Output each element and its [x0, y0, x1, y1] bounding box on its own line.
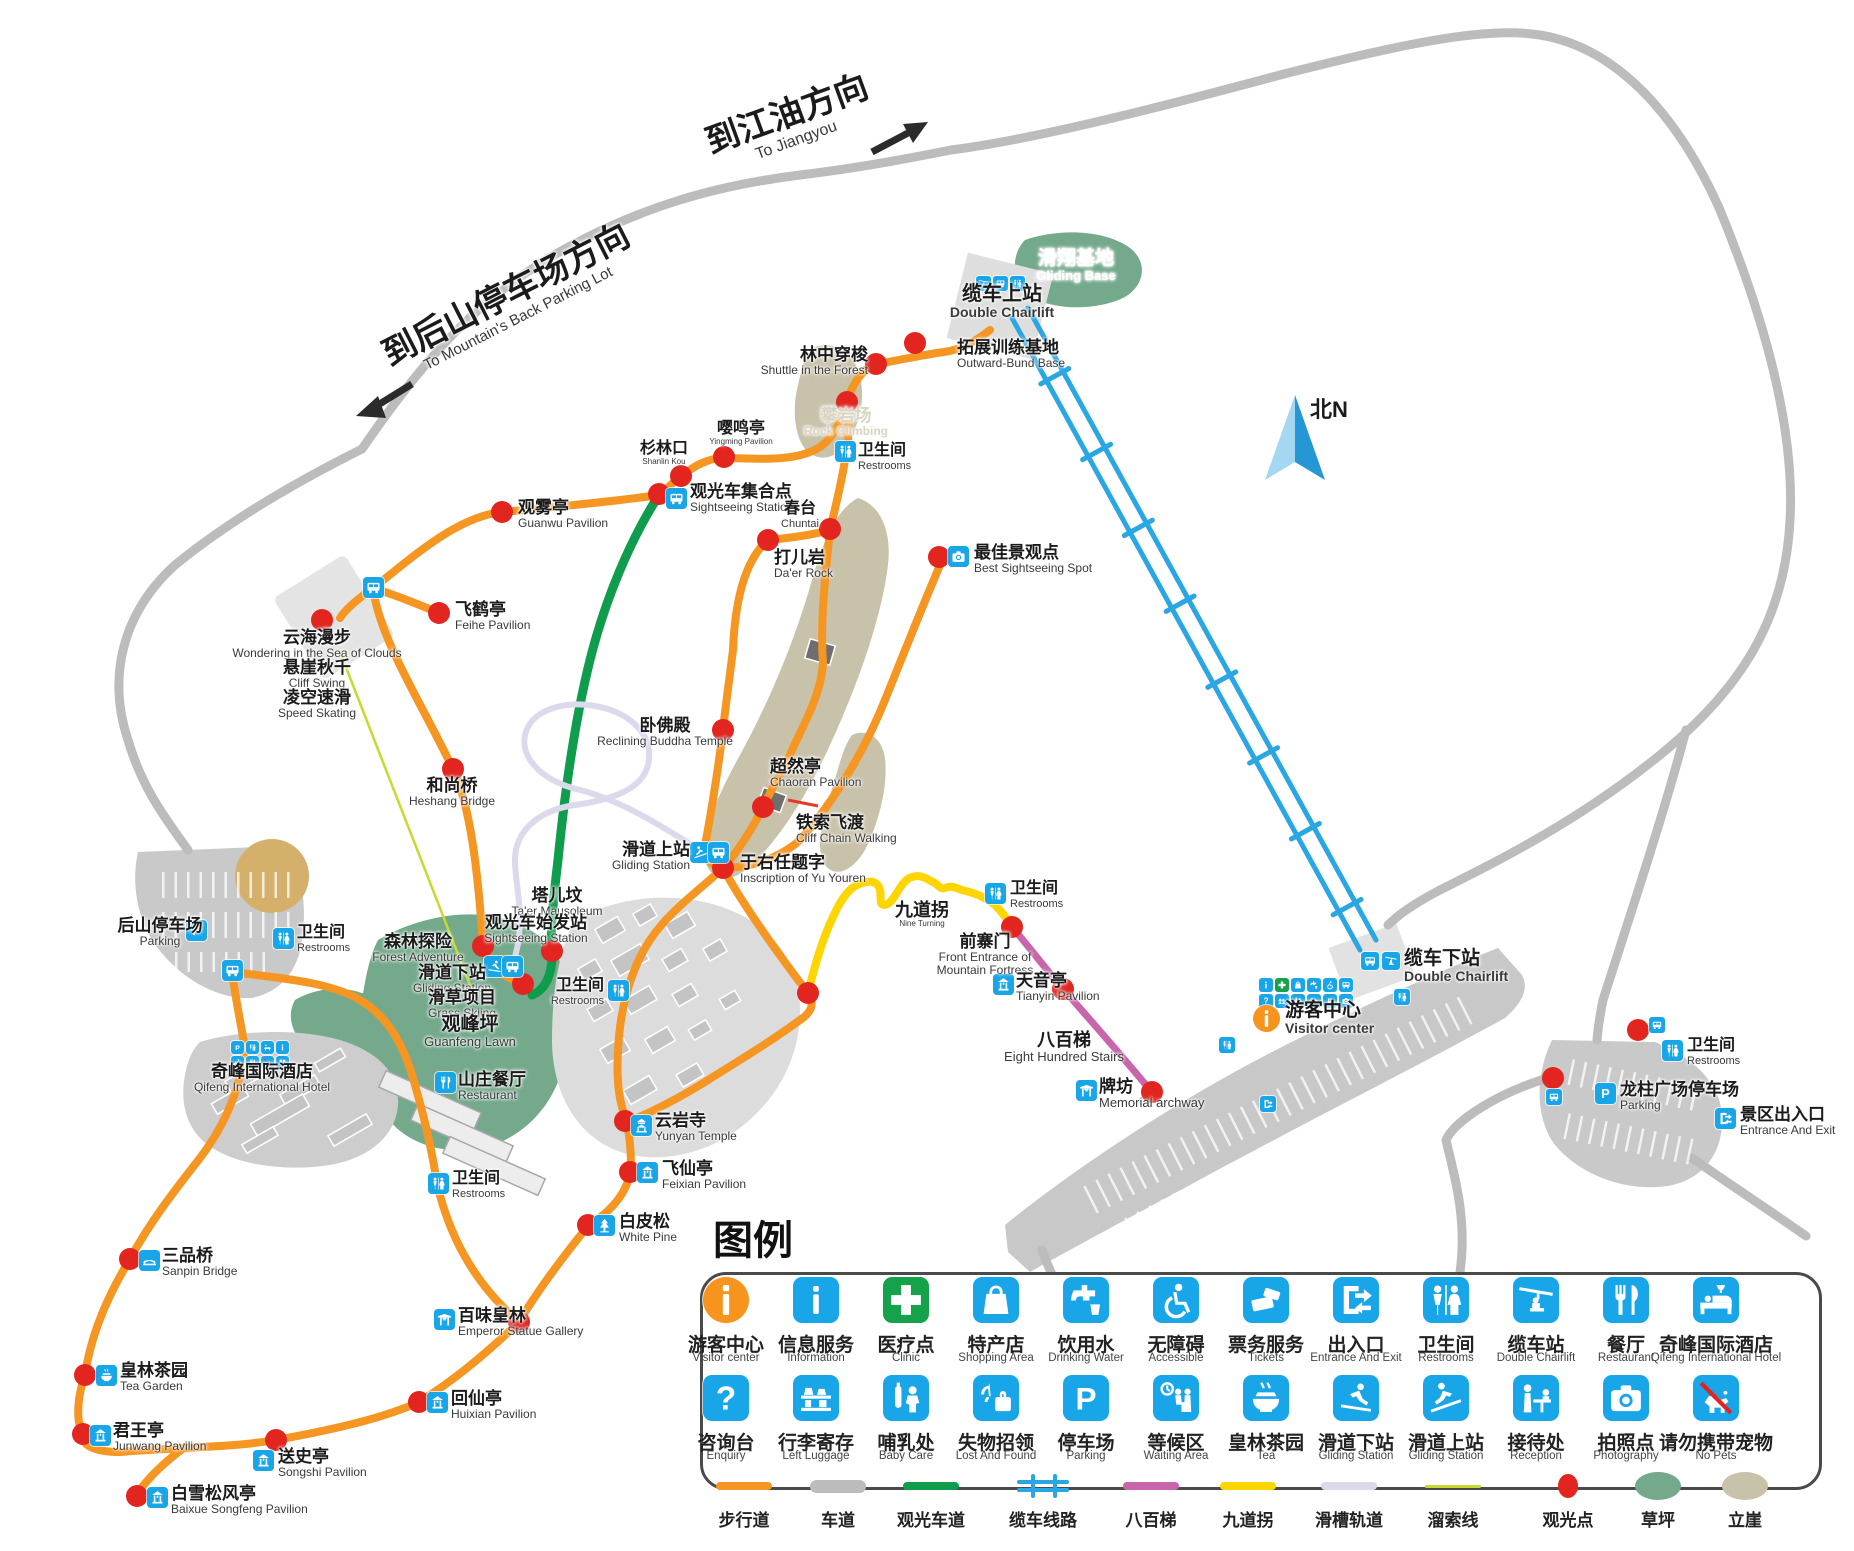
legend-line-label: 九道拐: [1223, 1506, 1274, 1531]
legend-chairlift-icon: [1513, 1277, 1559, 1323]
to-jiangyou-arrow: [872, 122, 928, 152]
legend-item-en: Enquiry: [707, 1450, 746, 1462]
legend-title: 图例: [713, 1208, 793, 1266]
poi-label-en: Restrooms: [452, 1188, 505, 1200]
wc-icon[interactable]: [985, 883, 1006, 904]
legend-tea-icon: [1243, 1375, 1289, 1421]
poi-label-en: Nine Turning: [895, 920, 949, 929]
bus-icon[interactable]: [666, 488, 687, 509]
pavilion-icon[interactable]: [90, 1425, 111, 1446]
poi-label: 飞仙亭Feixian Pavilion: [662, 1159, 746, 1191]
poi-label-en: Sanpin Bridge: [162, 1265, 237, 1278]
poi-label-zh: 滑翔基地: [1036, 248, 1115, 269]
poi-label-zh: 游客中心: [1285, 1000, 1374, 1021]
wheelchair-icon[interactable]: [1323, 978, 1337, 992]
poi-label-en: Guanwu Pavilion: [518, 517, 608, 530]
legend-luggage-icon: [793, 1375, 839, 1421]
forkknife-icon[interactable]: [435, 1072, 456, 1093]
legend-item-en: Waiting Area: [1144, 1450, 1209, 1462]
poi-label-en: Huixian Pavilion: [451, 1408, 536, 1421]
poi-label-en: Sightseeing Station: [484, 932, 587, 945]
legend-item-en: Parking: [1067, 1450, 1106, 1462]
svg-text:P: P: [1075, 1380, 1096, 1416]
poi-label: 悬崖秋千Cliff Swing: [283, 658, 351, 690]
legend-line-label: 立崖: [1728, 1506, 1762, 1531]
sightseeing-spot-dot[interactable]: [819, 518, 841, 540]
archway-icon[interactable]: [434, 1309, 455, 1330]
poi-label-zh: 观雾亭: [518, 498, 608, 517]
poi-label-zh: 攀岩场: [804, 406, 888, 425]
poi-label-en: Qifeng International Hotel: [194, 1081, 330, 1094]
poi-label-en: Cliff Chain Walking: [796, 832, 897, 845]
roads: [119, 33, 1806, 1414]
poi-label-zh: 奇峰国际酒店: [194, 1062, 330, 1081]
poi-label: 龙柱广场停车场Parking: [1620, 1080, 1739, 1112]
area-blobs: [135, 232, 1722, 1272]
legend-lostfound-icon: [973, 1375, 1019, 1421]
poi-label-zh: 林中穿梭: [761, 345, 868, 364]
poi-label-zh: 卫生间: [551, 977, 604, 995]
poi-label-zh: 皇林茶园: [120, 1361, 188, 1380]
poi-label-en: Inscription of Yu Youren: [740, 872, 866, 885]
poi-label-zh: 缆车上站: [950, 283, 1054, 305]
poi-label: 景区出入口Entrance And Exit: [1740, 1105, 1835, 1137]
bus-icon[interactable]: [502, 956, 523, 977]
bus-icon[interactable]: [1339, 978, 1353, 992]
poi-label-en: Da'er Rock: [774, 567, 833, 580]
poi-label: 铁索飞渡Cliff Chain Walking: [796, 813, 897, 845]
pavilion-icon[interactable]: [147, 1487, 168, 1508]
legend-question-icon: ?: [703, 1375, 749, 1421]
poi-label-zh: 白雪松风亭: [171, 1484, 308, 1503]
poi-label-en: Feixian Pavilion: [662, 1178, 746, 1191]
poi-label-zh: 铁索飞渡: [796, 813, 897, 832]
poi-label-zh: 杉林口: [640, 440, 688, 458]
wc-icon[interactable]: [608, 980, 629, 1001]
sand-circle: [235, 839, 309, 913]
poi-label-en: Parking: [1620, 1099, 1739, 1112]
poi-label: 卧佛殿Reclining Buddha Temple: [597, 716, 733, 748]
poi-label: 打儿岩Da'er Rock: [774, 548, 833, 580]
poi-label-zh: 飞鹤亭: [455, 600, 530, 619]
poi-label: 白皮松White Pine: [619, 1212, 677, 1244]
legend-line-line: [1123, 1482, 1179, 1490]
poi-label: 游客中心Visitor center: [1285, 1000, 1374, 1037]
poi-label: 于右任题字Inscription of Yu Youren: [740, 853, 866, 885]
poi-label: 缆车下站Double Chairlift: [1404, 948, 1508, 985]
i-icon[interactable]: [1259, 978, 1273, 992]
legend-item-en: Qifeng International Hotel: [1651, 1352, 1781, 1364]
poi-label-zh: 超然亭: [770, 757, 861, 776]
exit-icon[interactable]: [1260, 1096, 1276, 1112]
poi-label-zh: 卧佛殿: [597, 716, 733, 735]
legend-item-en: Double Chairlift: [1497, 1352, 1576, 1364]
poi-label-zh: 卫生间: [297, 924, 350, 942]
poi-label: 卫生间Restrooms: [1687, 1037, 1740, 1067]
poi-label: 超然亭Chaoran Pavilion: [770, 757, 861, 789]
sightseeing-spot-dot[interactable]: [74, 1364, 96, 1386]
poi-label: 云岩寺Yunyan Temple: [655, 1111, 737, 1143]
poi-label-zh: 观峰坪: [424, 1014, 516, 1035]
to-back-parking-arrow: [356, 384, 412, 418]
tea-icon[interactable]: [96, 1365, 117, 1386]
poi-label: 滑翔基地Gliding Base: [1036, 248, 1115, 284]
sightseeing-spot-dot[interactable]: [865, 353, 887, 375]
poi-label-zh: 前寨门: [937, 932, 1034, 951]
poi-label: 君王亭Junwang Pavilion: [113, 1421, 206, 1453]
wc-icon[interactable]: [246, 1041, 259, 1054]
legend-item-en: Reception: [1510, 1450, 1562, 1462]
poi-label: 拓展训练基地Outward-Bund Base: [957, 338, 1065, 370]
legend-item-en: Gliding Station: [1319, 1450, 1394, 1462]
legend-item-en: Shopping Area: [958, 1352, 1033, 1364]
legend-line-line: [1321, 1482, 1377, 1490]
poi-label-en: Sightseeing Station: [690, 501, 793, 514]
poi-label: 最佳景观点Best Sightseeing Spot: [974, 543, 1092, 575]
legend-item-en: Lost And Found: [956, 1450, 1037, 1462]
chairlift-icon[interactable]: [1382, 952, 1400, 970]
poi-label-zh: 凌空速滑: [278, 688, 356, 707]
legend-tap-icon: [1063, 1277, 1109, 1323]
poi-label-en: Yingming Pavilion: [709, 438, 772, 447]
legend-line-label: 滑槽轨道: [1315, 1506, 1383, 1531]
poi-label: 飞鹤亭Feihe Pavilion: [455, 600, 530, 632]
poi-label-zh: 卫生间: [452, 1170, 505, 1188]
poi-label-zh: 卫生间: [1687, 1037, 1740, 1055]
poi-label-en: Restrooms: [858, 460, 911, 472]
poi-label-zh: 森林探险: [372, 932, 463, 951]
poi-label-zh: 九道拐: [895, 900, 949, 920]
legend-line-ladder: [1015, 1474, 1071, 1503]
poi-label: 缆车上站Double Chairlift: [950, 283, 1054, 321]
legend-line-label: 观光点: [1543, 1506, 1594, 1531]
legend-item-en: Photography: [1593, 1450, 1658, 1462]
sightseeing-spot-dot[interactable]: [119, 1248, 141, 1270]
poi-label-zh: 回仙亭: [451, 1389, 536, 1408]
poi-label: 奇峰国际酒店Qifeng International Hotel: [194, 1062, 330, 1094]
poi-label-zh: 云岩寺: [655, 1111, 737, 1130]
poi-label: 春台Chuntai: [781, 500, 819, 530]
svg-text:P: P: [235, 1044, 240, 1051]
poi-label: 攀岩场Rock Climbing: [804, 406, 888, 438]
poi-label: 九道拐Nine Turning: [895, 900, 949, 929]
legend-line-label: 缆车线路: [1009, 1506, 1077, 1531]
poi-label-zh: 和尚桥: [409, 776, 495, 795]
pavilion-icon[interactable]: [253, 1450, 274, 1471]
poi-label-zh: 白皮松: [619, 1212, 677, 1231]
poi-label-en: Gliding Station: [612, 859, 690, 872]
poi-label-en: Visitor center: [1285, 1021, 1374, 1037]
poi-label: 和尚桥Heshang Bridge: [409, 776, 495, 808]
poi-label-zh: 送史亭: [278, 1447, 367, 1466]
poi-label-zh: 天音亭: [1016, 971, 1100, 990]
legend-line-road: [810, 1480, 866, 1493]
legend-item-en: Baby Care: [879, 1450, 933, 1462]
legend-line-blob: [1722, 1472, 1768, 1500]
poi-label: 天音亭Tianyin Pavilion: [1016, 971, 1100, 1003]
poi-label-en: Restrooms: [297, 942, 350, 954]
legend-exit-icon: [1333, 1277, 1379, 1323]
poi-label-zh: 景区出入口: [1740, 1105, 1835, 1124]
poi-label-en: Tianyin Pavilion: [1016, 990, 1100, 1003]
poi-label-en: Tea Garden: [120, 1380, 188, 1393]
legend-visitor-icon: [703, 1277, 749, 1323]
poi-label-zh: 滑草项目: [428, 988, 496, 1007]
legend-item-en: Gliding Station: [1409, 1450, 1484, 1462]
legend-plus-icon: [883, 1277, 929, 1323]
poi-label: 回仙亭Huixian Pavilion: [451, 1389, 536, 1421]
poi-label-zh: 嘤鸣亭: [709, 420, 772, 438]
poi-label-en: Chuntai: [781, 518, 819, 530]
wc-icon[interactable]: [273, 928, 294, 949]
legend-line-label: 草坪: [1641, 1506, 1675, 1531]
sightseeing-spot-dot[interactable]: [1627, 1019, 1649, 1041]
poi-label: 观雾亭Guanwu Pavilion: [518, 498, 608, 530]
legend-item-en: Tickets: [1248, 1352, 1284, 1364]
poi-label-en: Songshi Pavilion: [278, 1466, 367, 1479]
compass-label: 北N: [1310, 398, 1348, 423]
svg-text:P: P: [1601, 1086, 1610, 1101]
legend-i-icon: [793, 1277, 839, 1323]
poi-label-en: Guanfeng Lawn: [424, 1035, 516, 1050]
wc-icon[interactable]: [1219, 1037, 1235, 1053]
legend-camera-icon: [1603, 1375, 1649, 1421]
legend-skiup-icon: [1423, 1375, 1469, 1421]
poi-label-en: Speed Skating: [278, 707, 356, 720]
poi-label-zh: 云海漫步: [232, 628, 401, 647]
poi-label-en: Restrooms: [1687, 1055, 1740, 1067]
legend-skidown-icon: [1333, 1375, 1379, 1421]
legend-bag-icon: [973, 1277, 1019, 1323]
shower-icon[interactable]: [261, 1041, 274, 1054]
legend-line-label: 八百梯: [1126, 1506, 1177, 1531]
svg-text:?: ?: [716, 1380, 736, 1417]
poi-label: 卫生间Restrooms: [551, 977, 604, 1007]
legend-line-label: 步行道: [719, 1506, 770, 1531]
poi-label: 卫生间Restrooms: [452, 1170, 505, 1200]
poi-label-zh: 悬崖秋千: [283, 658, 351, 677]
P-icon[interactable]: P: [1595, 1083, 1616, 1104]
poi-label-en: Baixue Songfeng Pavilion: [171, 1503, 308, 1516]
bus-icon[interactable]: [1546, 1089, 1562, 1105]
poi-label-en: Parking: [118, 935, 203, 948]
legend-item-en: Restrooms: [1418, 1352, 1474, 1364]
poi-label: 嘤鸣亭Yingming Pavilion: [709, 420, 772, 447]
legend-item-en: Visitor center: [693, 1352, 760, 1364]
poi-label-en: Shanlin Kou: [640, 458, 688, 467]
legend-line-dot: [1558, 1474, 1578, 1498]
poi-label-zh: 后山停车场: [118, 916, 203, 935]
legend-baby-icon: [883, 1375, 929, 1421]
poi-label-en: Emperor Statue Gallery: [458, 1325, 583, 1338]
legend-item-en: Clinic: [892, 1352, 920, 1364]
legend-ticket-icon: [1243, 1277, 1289, 1323]
poi-label-zh: 君王亭: [113, 1421, 206, 1440]
poi-label-en: Shuttle in the Forest: [761, 364, 868, 377]
legend-wc-icon: [1423, 1277, 1469, 1323]
plus-icon[interactable]: [1275, 978, 1289, 992]
poi-label: 卫生间Restrooms: [1010, 880, 1063, 910]
poi-label-en: Rock Climbing: [804, 425, 888, 438]
poi-label-zh: 打儿岩: [774, 548, 833, 567]
tap-icon[interactable]: [1307, 978, 1321, 992]
poi-label-zh: 飞仙亭: [662, 1159, 746, 1178]
poi-label-zh: 塔儿坟: [512, 886, 603, 905]
scenic-area-map: 北N 图例 到江油方向To Jiangyou到后山停车场方向To Mountai…: [0, 0, 1854, 1551]
poi-label-en: Entrance And Exit: [1740, 1124, 1835, 1137]
poi-label: 三品桥Sanpin Bridge: [162, 1246, 237, 1278]
poi-label-zh: 龙柱广场停车场: [1620, 1080, 1739, 1099]
legend-line-label: 车道: [821, 1506, 855, 1531]
poi-label-zh: 春台: [781, 500, 819, 518]
legend-reception-icon: [1513, 1375, 1559, 1421]
poi-label-en: Memorial archway: [1099, 1096, 1204, 1111]
poi-label-zh: 缆车下站: [1404, 948, 1508, 969]
visitor-icon[interactable]: [1253, 1005, 1280, 1032]
poi-label-en: Restrooms: [551, 995, 604, 1007]
legend-waiting-icon: [1153, 1375, 1199, 1421]
poi-label: 皇林茶园Tea Garden: [120, 1361, 188, 1393]
poi-label-zh: 拓展训练基地: [957, 338, 1065, 357]
poi-label-zh: 三品桥: [162, 1246, 237, 1265]
wc-icon[interactable]: [1662, 1040, 1683, 1061]
legend-item-en: Tea: [1257, 1450, 1276, 1462]
poi-label-en: Eight Hundred Stairs: [1004, 1050, 1124, 1065]
poi-label: 八百梯Eight Hundred Stairs: [1004, 1030, 1124, 1065]
poi-label-zh: 山庄餐厅: [458, 1070, 526, 1089]
poi-label-zh: 观光车集合点: [690, 482, 793, 501]
poi-label-zh: 滑道下站: [413, 963, 491, 982]
legend-line-line: [903, 1482, 959, 1490]
poi-label-en: White Pine: [619, 1231, 677, 1244]
i-icon[interactable]: [276, 1041, 289, 1054]
legend-item-en: No Pets: [1696, 1450, 1737, 1462]
legend-line-thin: [1425, 1485, 1481, 1488]
temple-icon[interactable]: [631, 1115, 652, 1136]
sightseeing-spot-dot[interactable]: [797, 982, 819, 1004]
legend-item-en: Information: [787, 1352, 845, 1364]
poi-label: 杉林口Shanlin Kou: [640, 440, 688, 467]
P-icon[interactable]: P: [231, 1041, 244, 1054]
bus-icon[interactable]: [222, 960, 243, 981]
legend-line-label: 溜索线: [1428, 1506, 1479, 1531]
poi-label-zh: 观光车始发站: [484, 913, 587, 932]
legend-item-en: Restaurant: [1598, 1352, 1654, 1364]
poi-label-en: Heshang Bridge: [409, 795, 495, 808]
poi-label: 送史亭Songshi Pavilion: [278, 1447, 367, 1479]
sightseeing-spot-dot[interactable]: [126, 1485, 148, 1507]
bridge-icon[interactable]: [139, 1250, 160, 1271]
poi-label-en: Outward-Bund Base: [957, 357, 1065, 370]
poi-label: 山庄餐厅Restaurant: [458, 1070, 526, 1102]
legend-item-en: Drinking Water: [1048, 1352, 1124, 1364]
legend-nopets-icon: [1693, 1375, 1739, 1421]
poi-label-en: Gliding Base: [1036, 269, 1115, 284]
bag-icon[interactable]: [1291, 978, 1305, 992]
sightseeing-spot-dot[interactable]: [752, 796, 774, 818]
legend-item-en: Left Luggage: [782, 1450, 849, 1462]
poi-label-en: Restrooms: [1010, 898, 1063, 910]
poi-label: 凌空速滑Speed Skating: [278, 688, 356, 720]
sightseeing-spot-dot[interactable]: [491, 501, 513, 523]
poi-label-zh: 八百梯: [1004, 1030, 1124, 1050]
legend-line-line: [1220, 1482, 1276, 1490]
wc-icon[interactable]: [428, 1173, 449, 1194]
poi-label-en: Feihe Pavilion: [455, 619, 530, 632]
poi-label-en: Double Chairlift: [1404, 969, 1508, 985]
bus-icon[interactable]: [363, 577, 384, 598]
legend-line-blob: [1635, 1472, 1681, 1500]
poi-label-zh: 百味皇林: [458, 1306, 583, 1325]
poi-label-zh: 卫生间: [858, 442, 911, 460]
poi-label-en: Yunyan Temple: [655, 1130, 737, 1143]
poi-label: 云海漫步Wondering in the Sea of Clouds: [232, 628, 401, 660]
legend-line-line: [716, 1482, 772, 1490]
poi-label-en: Chaoran Pavilion: [770, 776, 861, 789]
poi-label-zh: 于右任题字: [740, 853, 866, 872]
bus-icon[interactable]: [1649, 1017, 1665, 1033]
poi-label-zh: 卫生间: [1010, 880, 1063, 898]
poi-label: 林中穿梭Shuttle in the Forest: [761, 345, 868, 377]
poi-label-en: Reclining Buddha Temple: [597, 735, 733, 748]
archway-icon[interactable]: [1076, 1080, 1097, 1101]
bus-icon[interactable]: [708, 842, 729, 863]
sightseeing-spot-dot[interactable]: [904, 332, 926, 354]
poi-label: 百味皇林Emperor Statue Gallery: [458, 1306, 583, 1338]
legend-item-en: Accessible: [1149, 1352, 1204, 1364]
poi-label-en: Restaurant: [458, 1089, 526, 1102]
poi-label: 卫生间Restrooms: [297, 924, 350, 954]
sightseeing-spot-dot[interactable]: [713, 446, 735, 468]
legend-forkknife-icon: [1603, 1277, 1649, 1323]
sightseeing-spot-dot[interactable]: [1542, 1067, 1564, 1089]
wc-icon[interactable]: [835, 441, 856, 462]
bus-icon[interactable]: [1361, 952, 1379, 970]
sightseeing-spot-dot[interactable]: [428, 602, 450, 624]
poi-label: 观光车始发站Sightseeing Station: [484, 913, 587, 945]
poi-label: 白雪松风亭Baixue Songfeng Pavilion: [171, 1484, 308, 1516]
poi-label-en: Junwang Pavilion: [113, 1440, 206, 1453]
poi-label: 观峰坪Guanfeng Lawn: [424, 1014, 516, 1050]
sightseeing-spot-dot[interactable]: [670, 465, 692, 487]
legend-P-icon: P: [1063, 1375, 1109, 1421]
poi-label: 森林探险Forest Adventure: [372, 932, 463, 964]
legend-bed-icon: [1693, 1277, 1739, 1323]
wc-icon[interactable]: [1394, 989, 1410, 1005]
poi-label-zh: 牌坊: [1099, 1077, 1204, 1096]
poi-label: 牌坊Memorial archway: [1099, 1077, 1204, 1111]
poi-label: 后山停车场Parking: [118, 916, 203, 948]
pavilion-icon[interactable]: [427, 1392, 448, 1413]
poi-label: 滑道上站Gliding Station: [612, 840, 690, 872]
poi-label-en: Double Chairlift: [950, 305, 1054, 321]
sightseeing-spot-dot[interactable]: [928, 546, 950, 568]
camera-icon[interactable]: [948, 546, 969, 567]
legend-line-label: 观光车道: [897, 1506, 965, 1531]
poi-label: 观光车集合点Sightseeing Station: [690, 482, 793, 514]
legend-item-en: Entrance And Exit: [1310, 1352, 1401, 1364]
walk-top: [340, 330, 990, 618]
poi-label-en: Best Sightseeing Spot: [974, 562, 1092, 575]
poi-label: 卫生间Restrooms: [858, 442, 911, 472]
pavilion-icon[interactable]: [637, 1162, 658, 1183]
legend-wheelchair-icon: [1153, 1277, 1199, 1323]
poi-label-zh: 最佳景观点: [974, 543, 1092, 562]
tree-icon[interactable]: [594, 1215, 615, 1236]
poi-label-zh: 滑道上站: [612, 840, 690, 859]
